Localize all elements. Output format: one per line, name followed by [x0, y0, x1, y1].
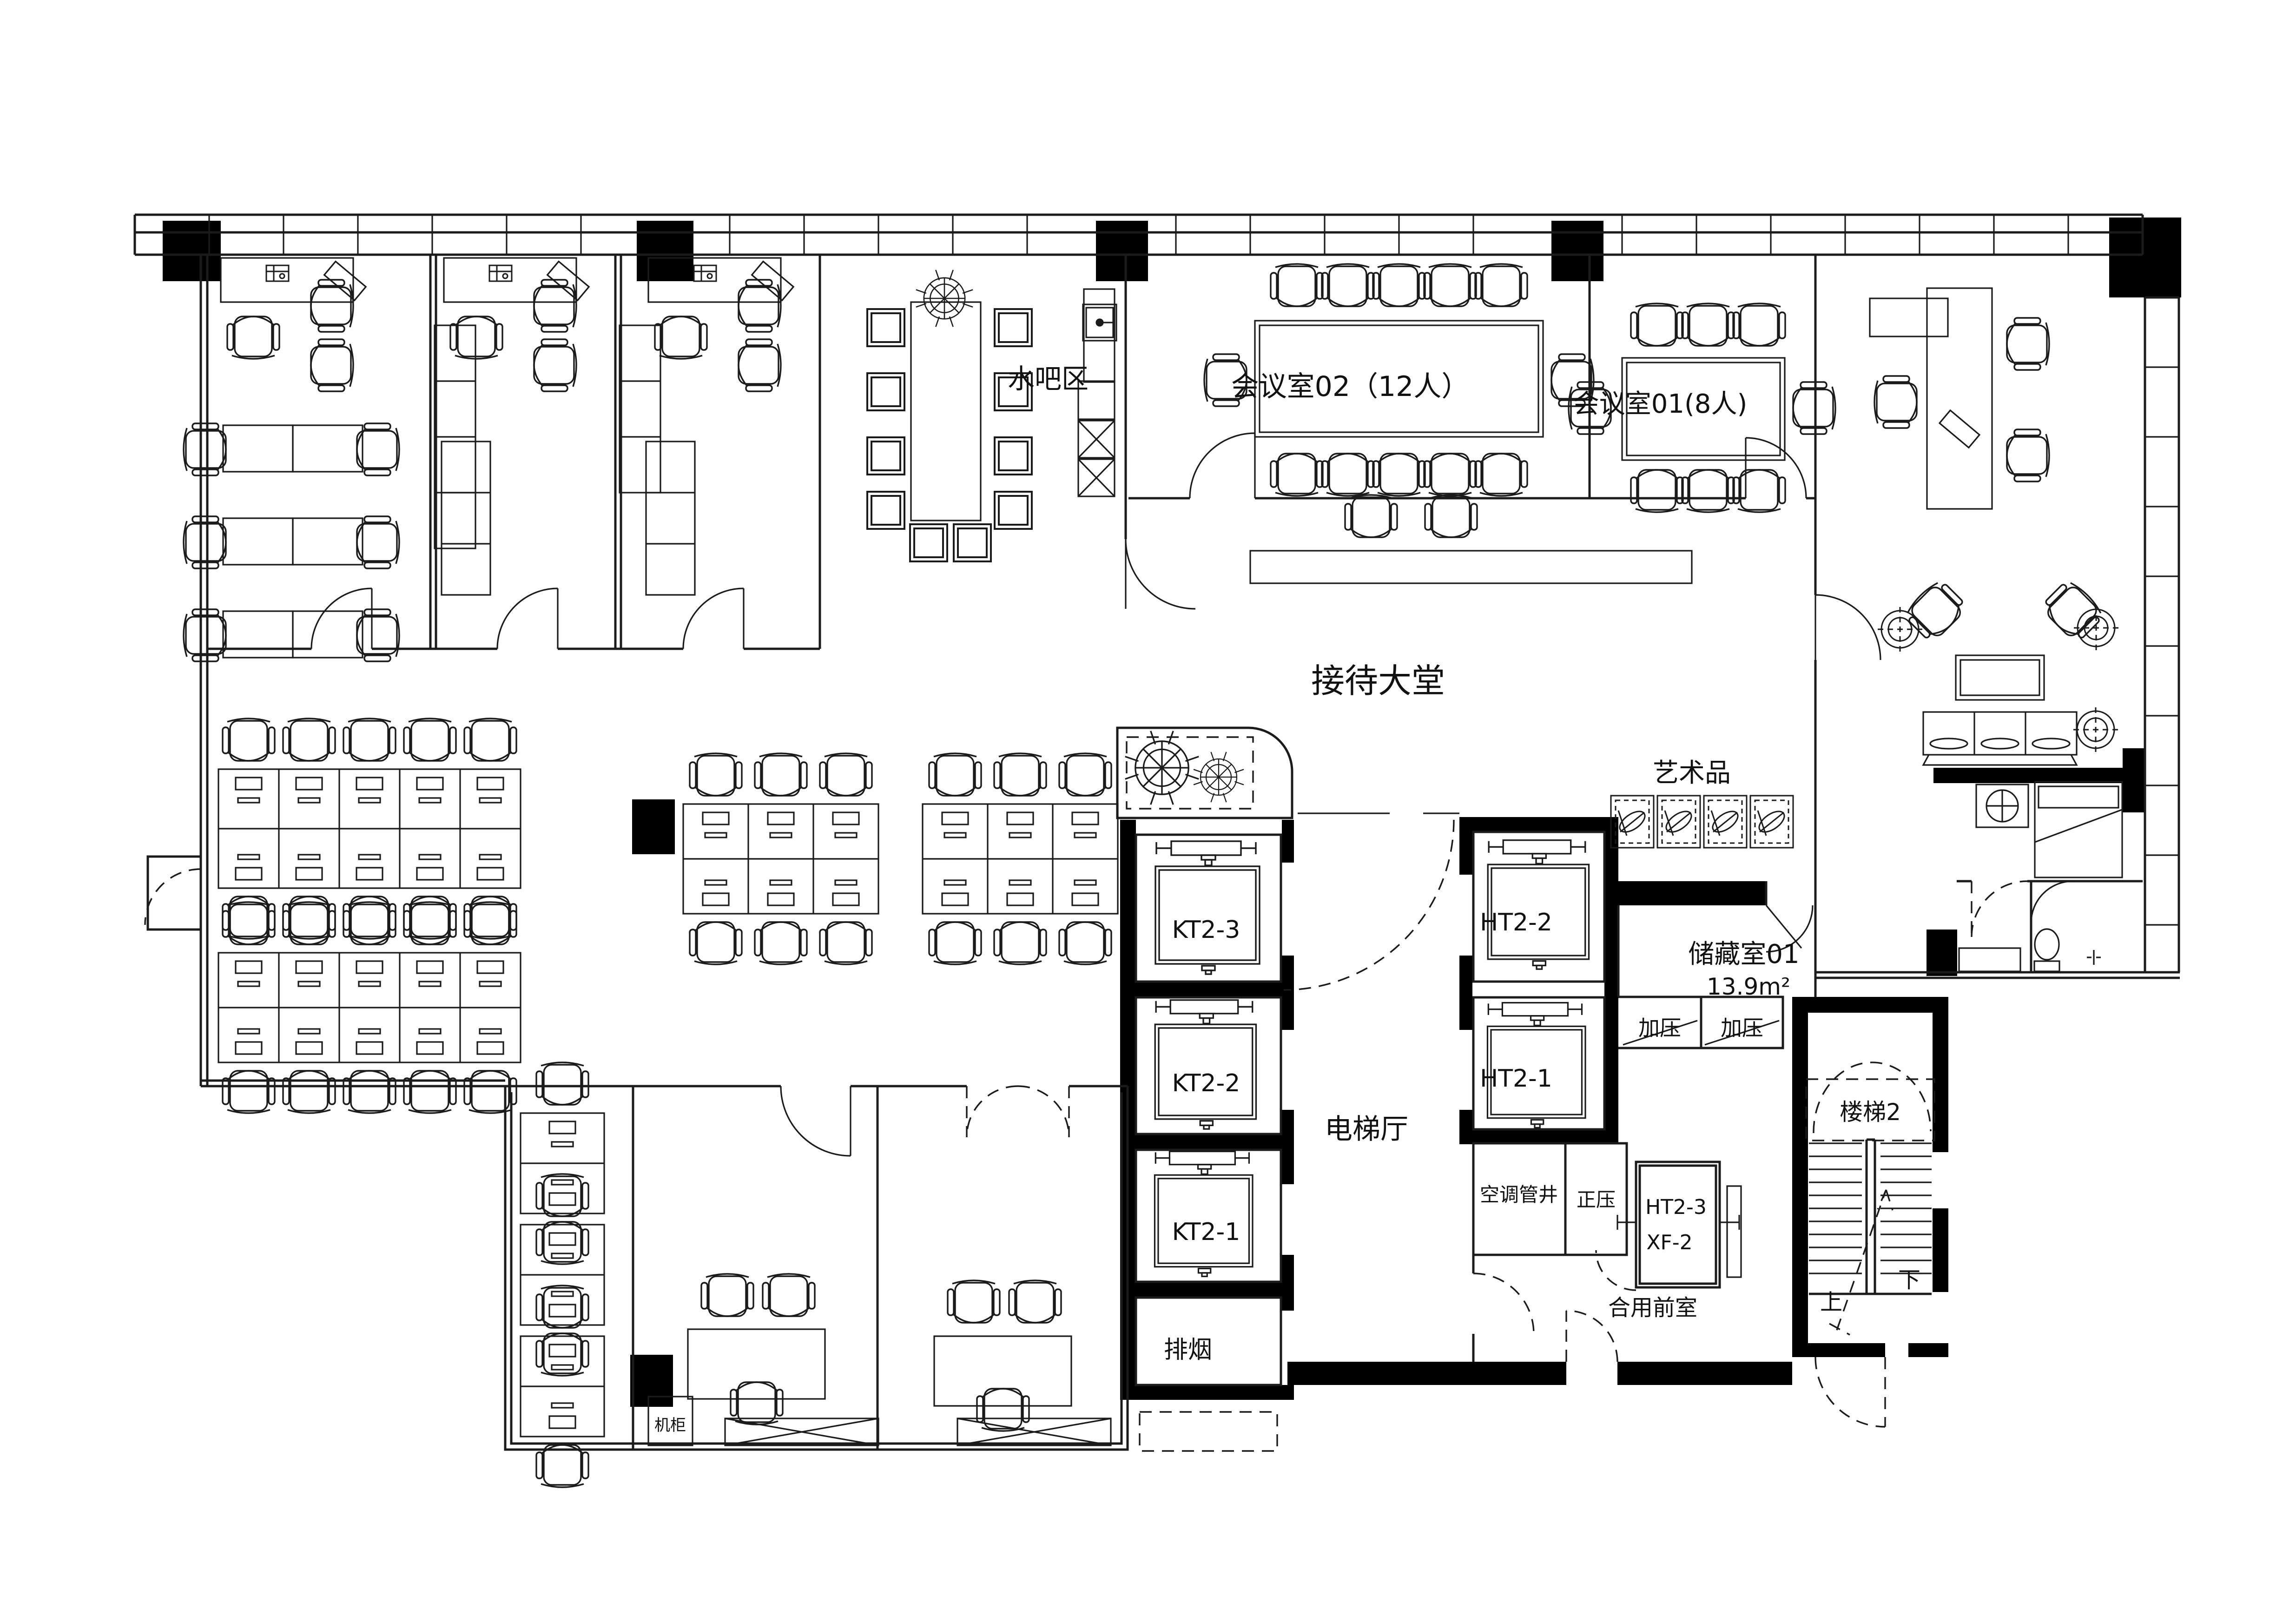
label-pressurized-2: 加压 [1721, 1015, 1763, 1041]
elevator-icon [1155, 1000, 1256, 1129]
label-kt2-1: KT2-1 [1172, 1218, 1240, 1246]
stool-icon [867, 309, 904, 346]
stool-icon [954, 524, 991, 561]
workstation-cluster [218, 953, 521, 1062]
chair-icon [977, 1389, 1029, 1431]
label-artwork: 艺术品 [1653, 758, 1731, 788]
toilet-icon [2034, 929, 2059, 971]
artwork-icon [1657, 796, 1700, 848]
chair-icon [1631, 303, 1683, 346]
label-storage-area: 13.9m² [1707, 973, 1790, 1000]
chair-icon [184, 609, 226, 661]
label-reception-lobby: 接待大堂 [1311, 661, 1445, 700]
phone-icon [266, 265, 289, 281]
column-icon [1927, 930, 1957, 976]
chair-icon [223, 719, 275, 761]
chair-icon [357, 609, 399, 661]
chair-icon [739, 339, 781, 391]
column-icon [632, 799, 675, 854]
workstation-cluster [521, 1113, 604, 1213]
tablet [324, 261, 366, 300]
chair-icon [2007, 318, 2049, 370]
plant-icon [1194, 752, 1244, 802]
laptop [1940, 410, 1979, 448]
chair-icon [283, 719, 335, 761]
workstation-cluster [683, 804, 878, 914]
side-table-icon [1878, 607, 1922, 652]
chair-icon [1059, 922, 1111, 964]
chair-icon [223, 1071, 275, 1113]
plant-icon [1125, 731, 1199, 804]
label-up: 上 [1820, 1289, 1842, 1315]
artwork-icon [1704, 796, 1747, 848]
chair-icon [1373, 264, 1425, 306]
sofa [442, 442, 695, 595]
chair-icon [755, 922, 807, 964]
chair-icon [929, 753, 981, 796]
phone-icon [694, 265, 716, 281]
column-icon [637, 221, 693, 281]
label-kt2-2: KT2-2 [1172, 1069, 1240, 1097]
chair-icon [283, 1071, 335, 1113]
chair-icon [311, 339, 353, 391]
chair-icon [1271, 264, 1323, 306]
stool-icon [995, 492, 1032, 529]
chair-icon [1475, 264, 1527, 306]
desk [934, 1336, 1071, 1406]
exterior-walls [135, 215, 2180, 1450]
column-icon [2109, 218, 2181, 297]
bar-island [911, 302, 981, 521]
chair-icon [1475, 454, 1527, 496]
stool-icon [995, 309, 1032, 346]
label-stair-2: 楼梯2 [1840, 1099, 1901, 1126]
label-storage-room: 储藏室01 [1688, 939, 1799, 969]
label-meeting-room-01: 会议室01(8人) [1573, 389, 1748, 419]
chair-icon [534, 280, 576, 332]
stool-icon [867, 373, 904, 410]
label-smoke-exhaust: 排烟 [1164, 1336, 1212, 1364]
chair-icon [929, 922, 981, 964]
chair-icon [948, 1280, 1000, 1323]
label-ht2-3: HT2-3 [1645, 1195, 1707, 1219]
chair-icon [1009, 1280, 1061, 1323]
stool-icon [867, 492, 904, 529]
chair-icon [690, 753, 742, 796]
workstation-cluster [521, 1225, 604, 1325]
chair-icon [994, 922, 1046, 964]
nightstand [1976, 785, 2028, 827]
dashed-lines [145, 737, 2027, 1451]
chair-icon [1424, 454, 1476, 496]
floor-plan-page: 水吧区 会议室02（12人） 会议室01(8人) 接待大堂 艺术品 储藏室01 … [0, 0, 2296, 1622]
chair-icon [820, 753, 872, 796]
bath-counter [1959, 948, 2020, 971]
bar-appliance-icon [1078, 421, 1115, 496]
label-ac-duct-shaft: 空调管井 [1480, 1183, 1558, 1206]
phone-icon [489, 265, 512, 281]
chair-icon [820, 922, 872, 964]
chair-icon [450, 316, 502, 359]
label-positive-pressure: 正压 [1577, 1188, 1616, 1211]
label-pressurized-1: 加压 [1638, 1015, 1681, 1041]
column-icon [163, 221, 221, 281]
chair-icon [1682, 303, 1734, 346]
doors [311, 433, 2073, 1156]
chair-icon [1322, 264, 1374, 306]
chair-icon [311, 280, 353, 332]
elevator-icon [1155, 1152, 1253, 1277]
coffee-table [1956, 655, 2044, 700]
label-ht2-1: HT2-1 [1480, 1065, 1552, 1093]
chair-icon [1874, 376, 1917, 428]
column-icon [630, 1355, 673, 1407]
chair-icon [1425, 495, 1477, 537]
chair-icon [357, 423, 399, 475]
chair-icon [1733, 470, 1785, 512]
chair-icon [1345, 495, 1397, 537]
artwork-icon [1750, 796, 1793, 848]
elevator-icon [1488, 840, 1589, 969]
chair-icon [357, 516, 399, 568]
tablet [752, 261, 794, 300]
label-meeting-room-02: 会议室02（12人） [1231, 370, 1470, 403]
chair-icon [1733, 303, 1785, 346]
desk [688, 1329, 825, 1399]
bed [2035, 782, 2122, 877]
elevator-icon [1155, 841, 1260, 974]
plant-icon [916, 270, 973, 327]
chair-icon [1424, 264, 1476, 306]
chair-icon [701, 1274, 753, 1316]
chair-icon [1271, 454, 1323, 496]
executive-desk [1927, 288, 1992, 509]
faucet-icon [2087, 950, 2101, 965]
reception-counter [1250, 551, 1692, 583]
chair-icon [184, 516, 226, 568]
workstation-cluster [923, 804, 1118, 914]
label-shared-front-room: 合用前室 [1608, 1295, 1697, 1321]
chair-icon [1322, 454, 1374, 496]
workstation-cluster [521, 1336, 604, 1437]
label-elevator-hall: 电梯厅 [1325, 1113, 1408, 1146]
tablet [548, 261, 589, 300]
label-xf-2: XF-2 [1646, 1231, 1692, 1254]
chair-icon [343, 1071, 396, 1113]
chair-icon [1631, 470, 1683, 512]
chair-icon [536, 1445, 588, 1487]
chair-icon [2007, 429, 2049, 481]
desk-return [1870, 298, 1948, 336]
label-down: 下 [1898, 1267, 1920, 1293]
stool-icon [867, 437, 904, 475]
chair-icon [1373, 454, 1425, 496]
chair-icon [739, 280, 781, 332]
chair-icon [404, 1071, 456, 1113]
column-icon [1551, 221, 1603, 281]
chair-icon [536, 1062, 588, 1105]
label-kt2-3: KT2-3 [1172, 916, 1240, 944]
chair-icon [404, 719, 456, 761]
side-table-icon [2073, 707, 2118, 752]
chair-icon [227, 316, 279, 359]
chair-icon [343, 719, 396, 761]
stool-icon [910, 524, 947, 561]
chair-icon [755, 753, 807, 796]
chair-icon [1902, 577, 1969, 644]
sink-icon [1083, 304, 1116, 341]
chair-icon [763, 1274, 815, 1316]
chair-icon [655, 316, 707, 359]
label-ht2-2: HT2-2 [1480, 909, 1552, 936]
chair-icon [994, 753, 1046, 796]
chair-icon [184, 423, 226, 475]
chair-icon [690, 922, 742, 964]
chair-icon [1682, 470, 1734, 512]
stool-icon [995, 437, 1032, 475]
chair-icon [464, 719, 516, 761]
label-equipment-cabinet: 机柜 [654, 1416, 686, 1435]
label-water-bar: 水吧区 [1008, 363, 1089, 395]
workstation-cluster [218, 769, 521, 888]
column-icon [1096, 221, 1148, 281]
chair-icon [534, 339, 576, 391]
lounge-sofa [1923, 712, 2077, 765]
chair-icon [1059, 753, 1111, 796]
chair-icon [464, 1071, 516, 1113]
floor-plan-svg: 水吧区 会议室02（12人） 会议室01(8人) 接待大堂 艺术品 储藏室01 … [0, 0, 2296, 1622]
